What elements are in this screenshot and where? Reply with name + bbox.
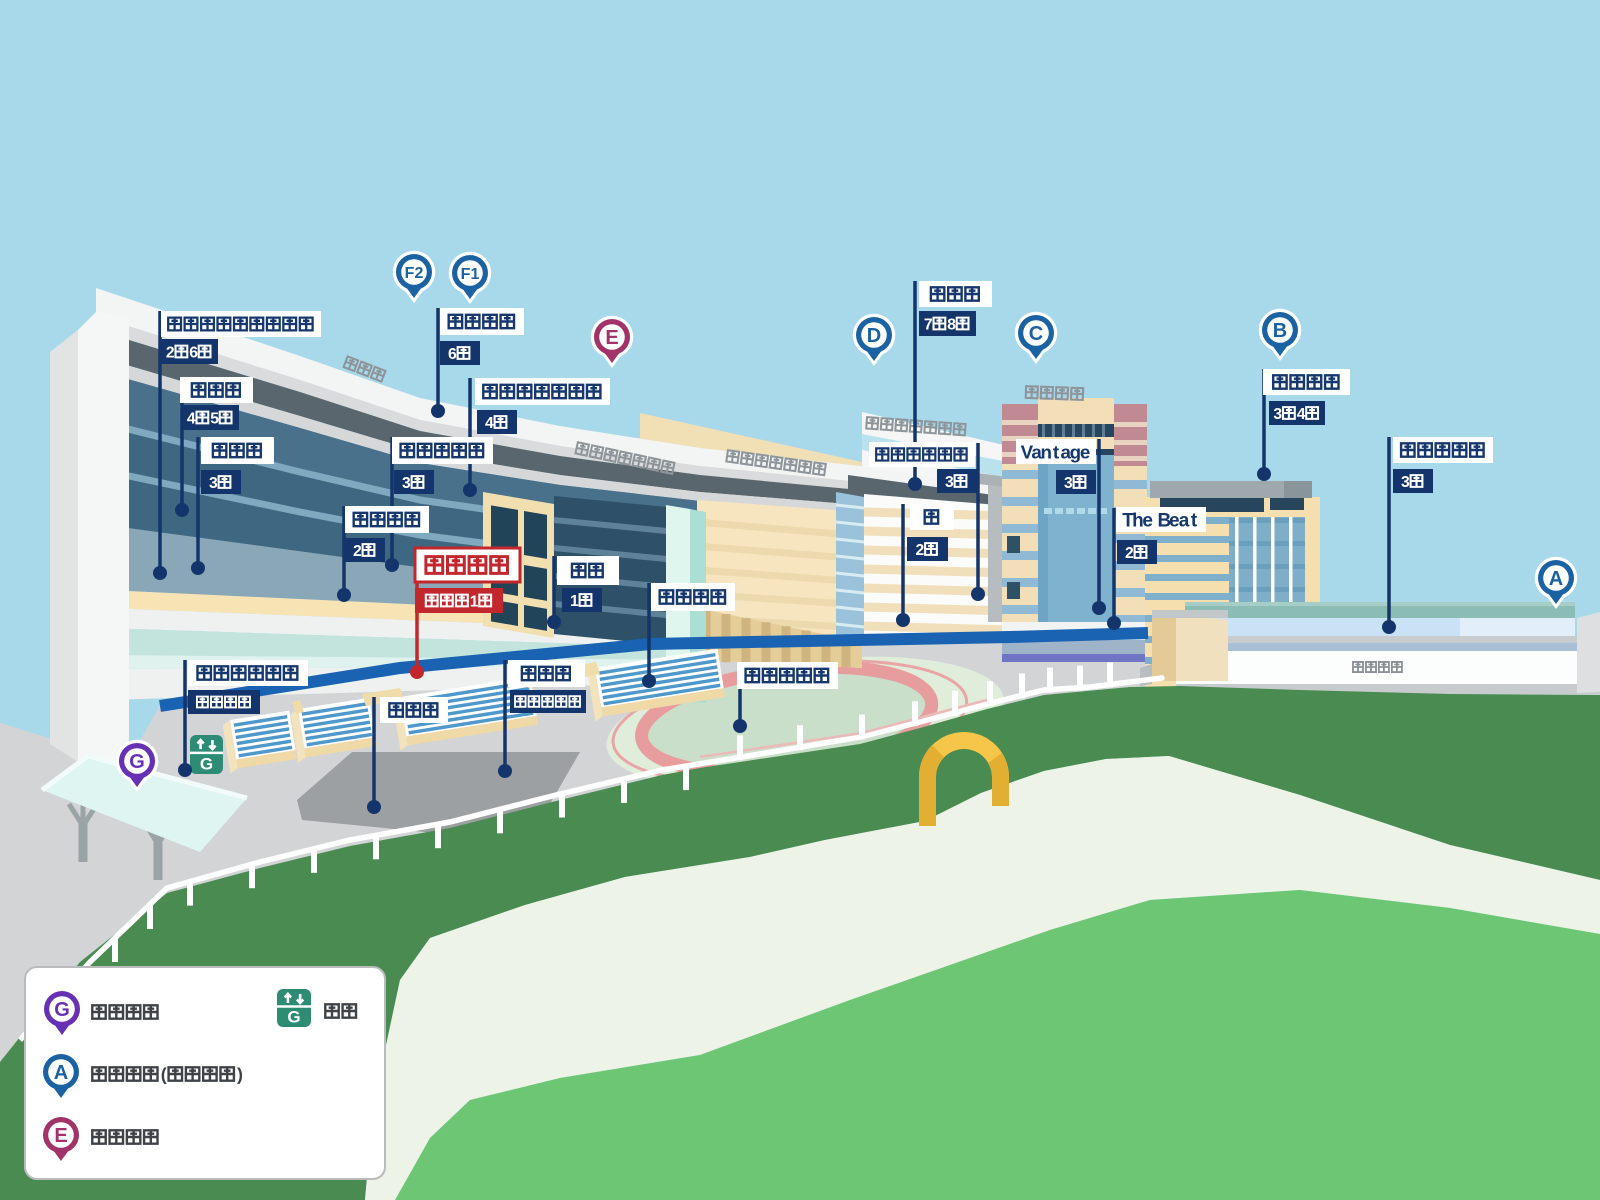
svg-text:3: 3	[1273, 406, 1282, 423]
svg-text:t: t	[1053, 442, 1060, 463]
svg-text:E: E	[54, 1125, 67, 1147]
svg-text:2: 2	[916, 542, 925, 559]
svg-text:3: 3	[209, 475, 218, 492]
svg-text:D: D	[867, 325, 881, 347]
svg-text:A: A	[54, 1062, 68, 1084]
svg-text:e: e	[1080, 442, 1090, 463]
svg-text:n: n	[1041, 442, 1052, 463]
svg-text:F2: F2	[405, 265, 424, 282]
svg-text:2: 2	[166, 344, 175, 361]
svg-text:7: 7	[924, 316, 933, 333]
svg-text:6: 6	[189, 344, 198, 361]
svg-text:4: 4	[485, 415, 494, 432]
svg-text:): )	[237, 1065, 243, 1085]
svg-text:F1: F1	[461, 266, 480, 283]
svg-text:4: 4	[1297, 406, 1306, 423]
svg-text:3: 3	[945, 474, 954, 491]
svg-text:G: G	[54, 999, 70, 1021]
svg-text:G: G	[287, 1007, 300, 1026]
svg-text:4: 4	[187, 410, 196, 427]
svg-text:3: 3	[402, 475, 411, 492]
svg-text:C: C	[1029, 323, 1043, 345]
svg-text:A: A	[1549, 568, 1563, 590]
svg-text:8: 8	[947, 316, 956, 333]
svg-text:3: 3	[1401, 474, 1410, 491]
svg-text:(: (	[161, 1065, 167, 1085]
svg-text:G: G	[129, 751, 145, 773]
svg-text:3: 3	[1064, 475, 1073, 492]
svg-text:2: 2	[1125, 545, 1134, 562]
svg-text:B: B	[1273, 320, 1287, 342]
svg-text:E: E	[605, 327, 618, 349]
svg-text:2: 2	[353, 543, 362, 560]
svg-text:6: 6	[448, 346, 457, 363]
svg-text:1: 1	[470, 593, 479, 610]
svg-text:e: e	[1142, 511, 1153, 532]
svg-text:5: 5	[210, 410, 219, 427]
svg-text:a: a	[1179, 511, 1190, 532]
svg-text:1: 1	[570, 593, 579, 610]
svg-text:t: t	[1191, 511, 1198, 532]
svg-text:G: G	[200, 754, 213, 773]
